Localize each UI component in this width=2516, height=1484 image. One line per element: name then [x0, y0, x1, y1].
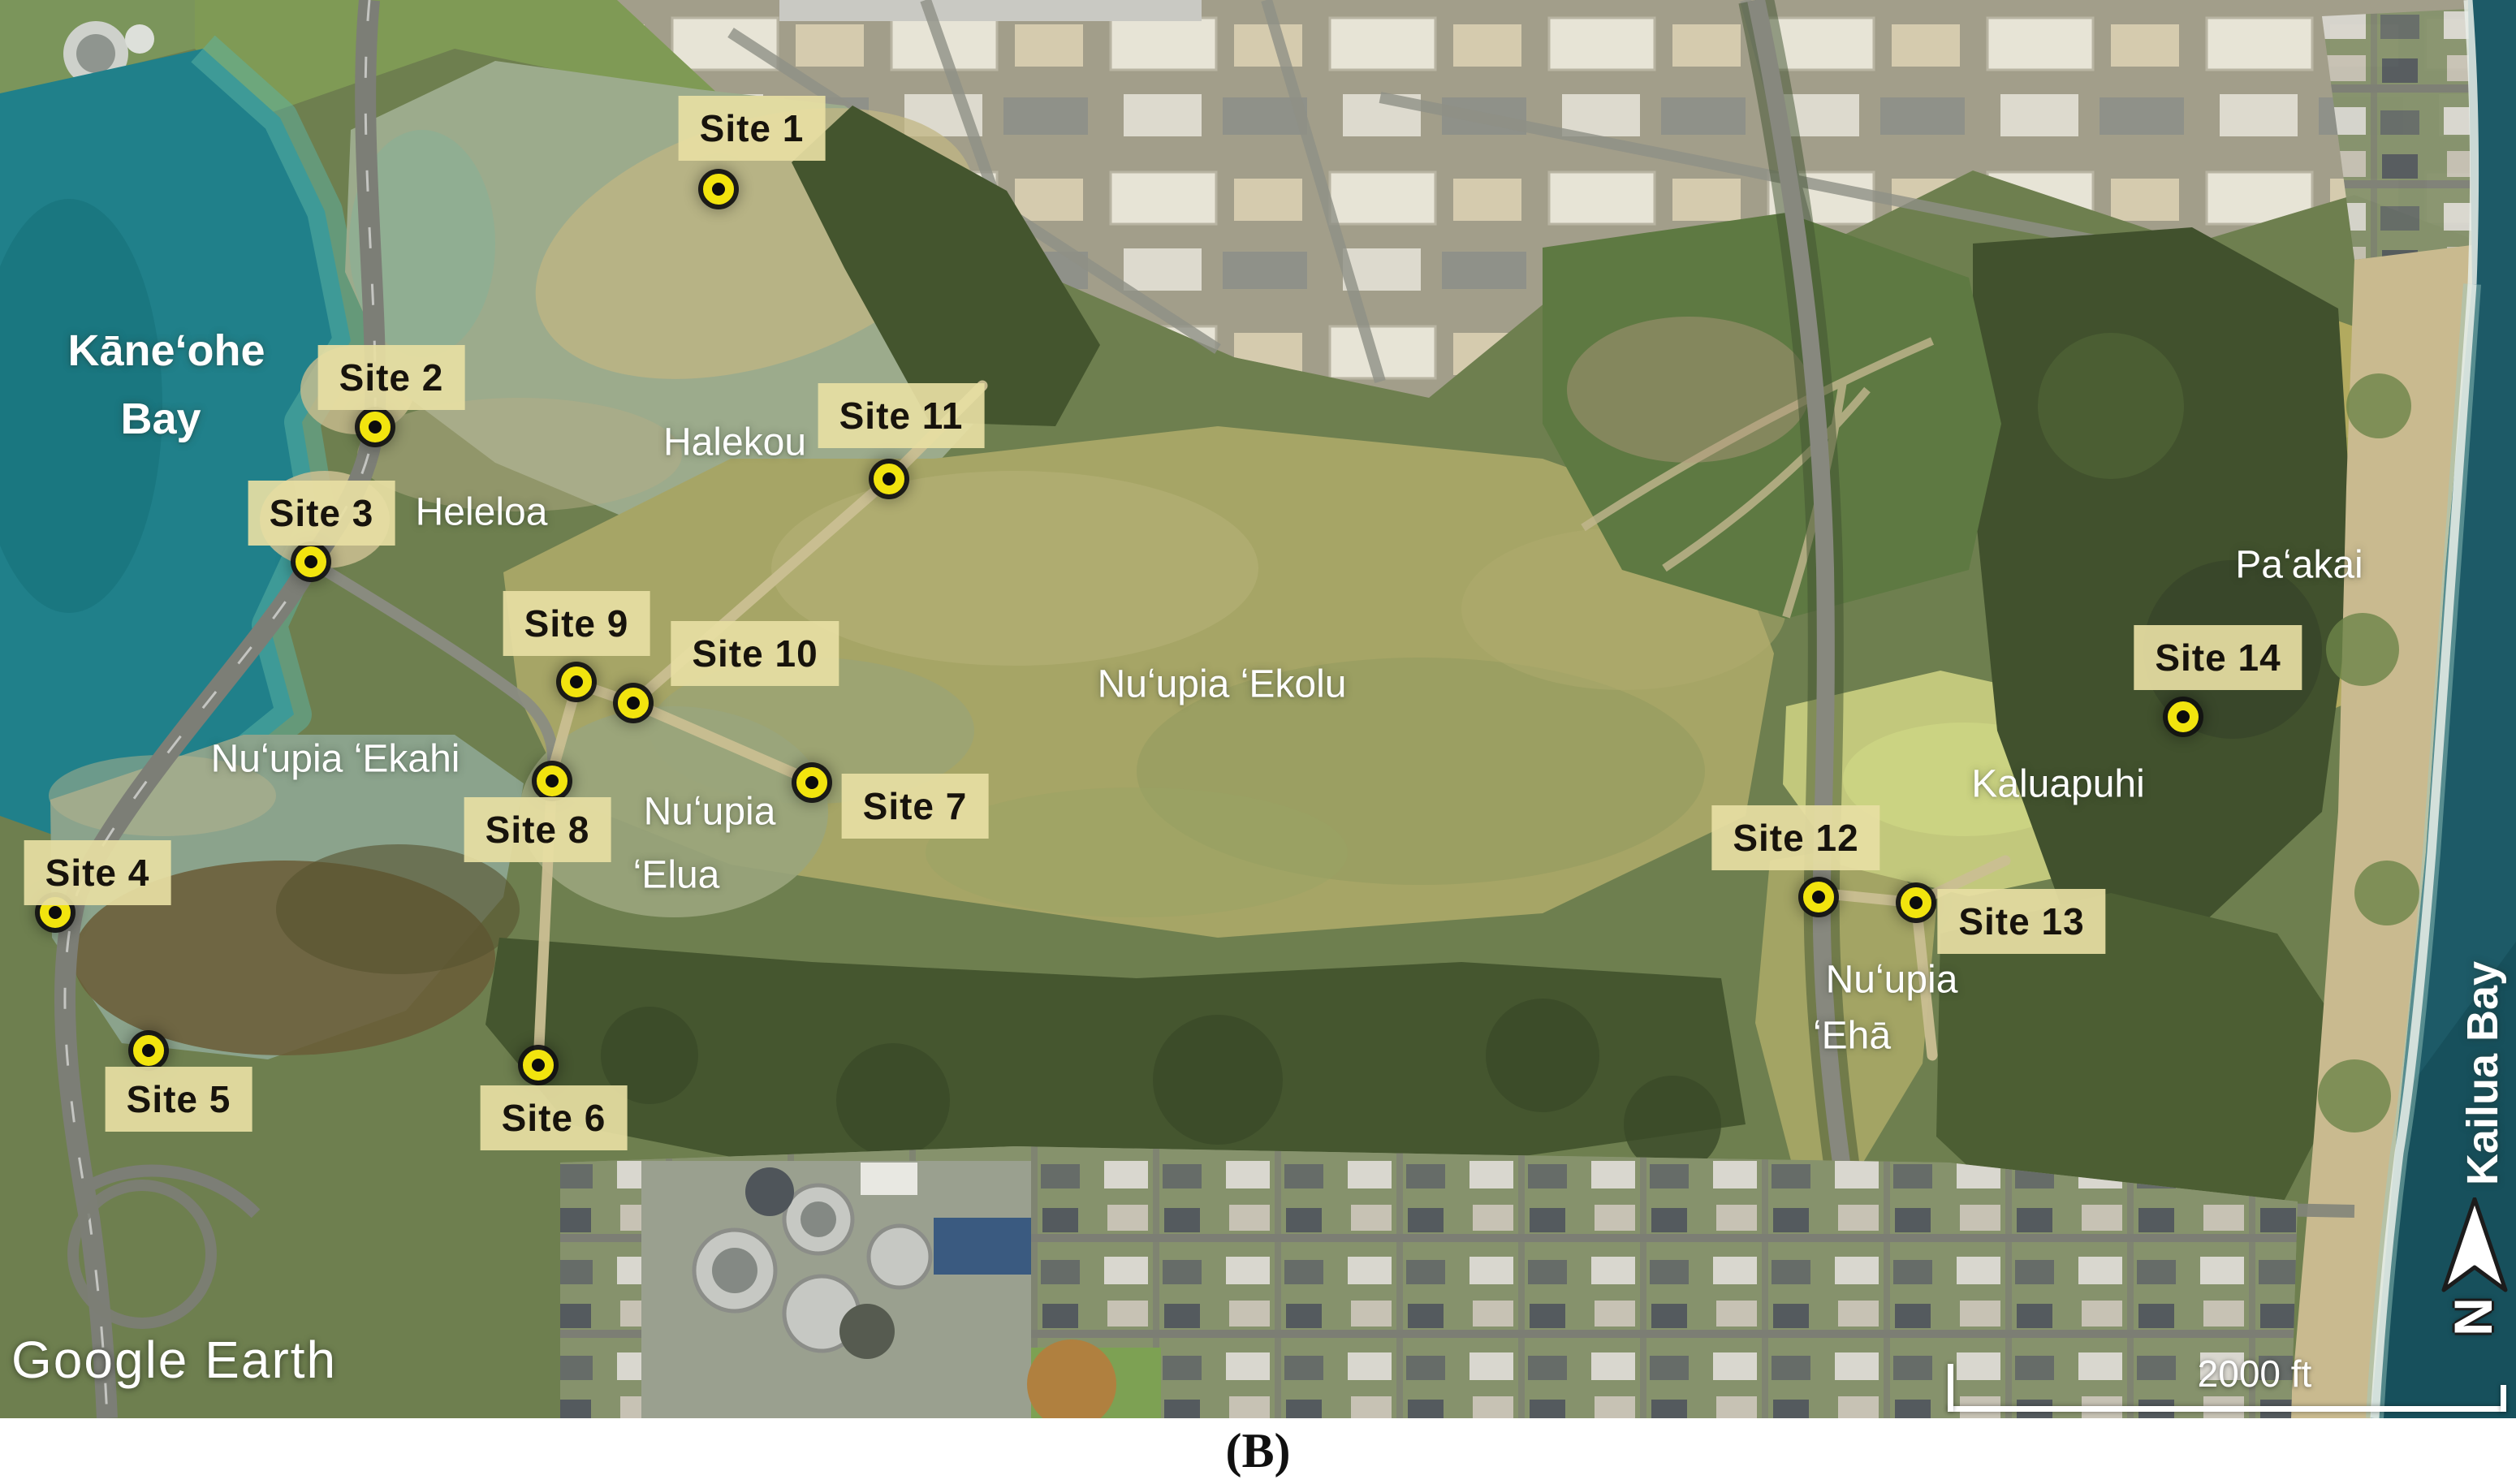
site-marker-3	[296, 546, 326, 577]
site-marker-2	[360, 412, 391, 442]
site-marker-12	[1803, 882, 1834, 912]
site-marker-11	[874, 464, 904, 494]
region-label-heleloa: Heleloa	[416, 490, 548, 535]
region-label-kaneohe-bay-line2: Bay	[120, 394, 201, 444]
north-label: N	[2446, 1297, 2500, 1336]
site-marker-9	[561, 667, 592, 697]
site-label-8: Site 8	[464, 797, 611, 862]
site-label-11: Site 11	[818, 383, 985, 448]
figure-panel-b: KāneʻoheBayHalekouHeleloaNuʻupia ʻEkahiN…	[0, 0, 2516, 1484]
region-label-kailua-bay: Kailua Bay	[2458, 961, 2508, 1185]
region-label-kaluapuhi: Kaluapuhi	[1971, 762, 2145, 807]
site-label-13: Site 13	[1937, 889, 2105, 954]
scale-bar-label: 2000 ft	[2198, 1352, 2312, 1396]
scale-bar-line	[1948, 1406, 2506, 1412]
region-label-paakai: Paʻakai	[2235, 543, 2363, 588]
site-label-14: Site 14	[2134, 625, 2302, 690]
site-label-5: Site 5	[106, 1067, 252, 1132]
region-label-nuupia-elua-line1: Nuʻupia	[644, 790, 776, 835]
region-label-nuupia-eha-line2: ʻEhā	[1813, 1014, 1891, 1059]
scale-bar-tick-right	[2501, 1385, 2506, 1412]
region-label-nuupia-ekolu: Nuʻupia ʻEkolu	[1098, 662, 1347, 707]
annotation-layer: KāneʻoheBayHalekouHeleloaNuʻupia ʻEkahiN…	[0, 0, 2516, 1418]
north-arrow-icon	[2439, 1197, 2510, 1295]
google-earth-watermark: Google Earth	[11, 1330, 337, 1390]
site-marker-10	[618, 688, 649, 718]
figure-caption: (B)	[0, 1418, 2516, 1484]
site-label-3: Site 3	[248, 481, 395, 546]
site-label-1: Site 1	[679, 96, 826, 161]
site-label-12: Site 12	[1711, 805, 1879, 870]
site-marker-5	[133, 1035, 164, 1066]
site-marker-13	[1901, 887, 1931, 918]
site-marker-14	[2168, 701, 2199, 732]
region-label-kaneohe-bay-line1: Kāneʻohe	[67, 326, 265, 376]
site-label-10: Site 10	[671, 621, 839, 686]
site-label-6: Site 6	[481, 1085, 628, 1150]
site-marker-6	[523, 1050, 554, 1081]
site-label-2: Site 2	[318, 345, 465, 410]
region-label-nuupia-eha-line1: Nuʻupia	[1826, 958, 1958, 1003]
region-label-halekou: Halekou	[663, 421, 806, 465]
site-label-9: Site 9	[503, 591, 650, 656]
site-label-7: Site 7	[842, 774, 989, 839]
region-label-nuupia-ekahi: Nuʻupia ʻEkahi	[211, 737, 460, 782]
region-label-nuupia-elua-line2: ʻElua	[633, 853, 720, 898]
site-marker-8	[537, 766, 568, 796]
site-label-4: Site 4	[24, 840, 171, 905]
site-marker-1	[703, 174, 734, 205]
site-marker-7	[796, 767, 827, 798]
scale-bar-tick-left	[1948, 1364, 1953, 1412]
google-earth-satellite-map: KāneʻoheBayHalekouHeleloaNuʻupia ʻEkahiN…	[0, 0, 2516, 1418]
